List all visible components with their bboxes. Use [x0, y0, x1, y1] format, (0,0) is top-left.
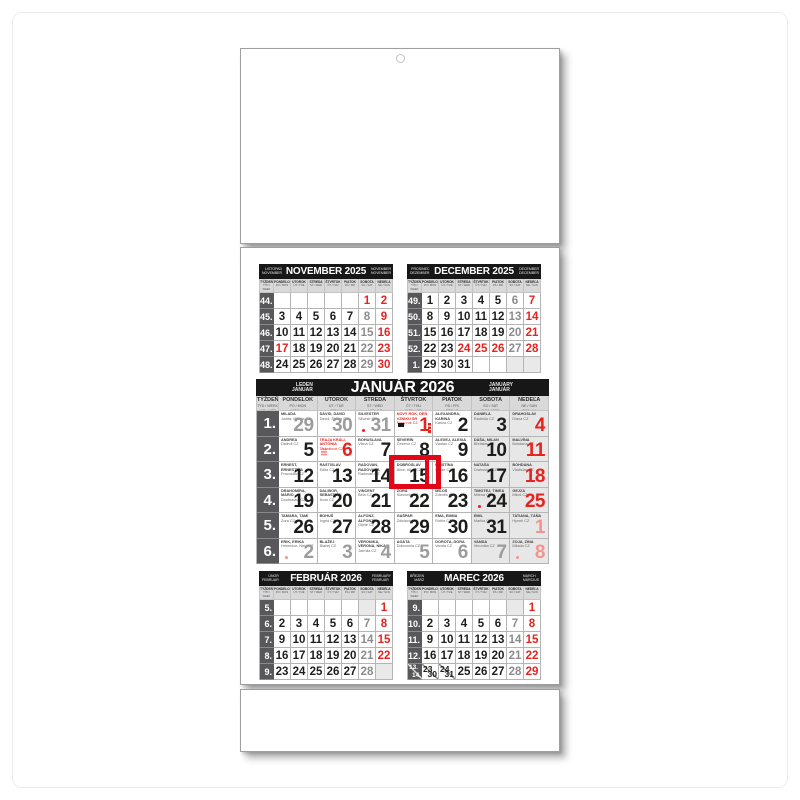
day-number: 5 [495, 295, 501, 307]
day-cell [308, 293, 325, 309]
week-number: 12. [408, 648, 422, 664]
week-number: 13.14. [408, 664, 422, 680]
day-number: 24 [276, 359, 289, 371]
weekday-cell: STREDAST / WED [308, 279, 325, 293]
weekday-cell: TÝŽDEŇTÝD / WEEK [408, 279, 422, 293]
day-cell: 28 [342, 357, 359, 373]
day-number: 8 [381, 618, 387, 630]
day-cell: NATAŠADrahoslav CZ17 [472, 462, 511, 488]
day-number: 6 [330, 311, 336, 323]
day-number: 4 [461, 618, 467, 630]
weekday-sub: ST / WED [456, 591, 472, 595]
day-cell: 18 [456, 648, 473, 664]
day-number: 31 [486, 518, 506, 537]
day-number: 3 [342, 543, 352, 562]
day-cell: 31 [456, 357, 473, 373]
day-number: 6 [495, 618, 501, 630]
week-number: 4. [257, 488, 279, 514]
day-number: 17 [293, 650, 306, 662]
day-number: 3 [461, 295, 467, 307]
footer-advert-area [240, 689, 560, 752]
day-cell: 22 [359, 341, 376, 357]
day-cell: VERONIKA, VERONA, NIKAJarmila CZ4 [356, 539, 395, 565]
day-cell: 4 [473, 293, 490, 309]
day-cell: ALFONZ, ALFONZIAOtýlie CZ28 [356, 513, 395, 539]
month-names-right: FEBRUARYFEBRUÁR [372, 574, 391, 582]
weekday-sub: TÝD / WEEK [408, 591, 421, 598]
day-cell: 2 [439, 293, 456, 309]
day-cell [490, 600, 507, 616]
day-number: 13 [332, 467, 352, 486]
weekday-sub: NE / SUN [524, 284, 540, 288]
weekday-name: PONDELOK [279, 396, 317, 404]
day-number: 5 [330, 618, 336, 630]
day-cell: BOHDANAVladislav CZ18 [510, 462, 549, 488]
day-cell: 20 [325, 341, 342, 357]
weekday-name: TÝŽDEŇ [257, 396, 278, 404]
day-number: 15 [378, 634, 391, 646]
day-cell: ZORASlavomír CZ22 [395, 488, 434, 514]
day-number: 11 [458, 634, 470, 646]
date-cursor-slider[interactable] [389, 455, 441, 489]
day-cell: 26 [308, 357, 325, 373]
mini-month-november: LISTOPADNOVEMBERNOVEMBER 2025NOVEMBERNOV… [259, 264, 393, 373]
weekday-cell: ŠTVRTOKČT / THU [473, 586, 490, 600]
day-number: 29 [424, 359, 437, 371]
day-number: 24 [458, 343, 471, 355]
day-number: 13 [492, 634, 505, 646]
day-cell: BOHUŠIngrid CZ27 [318, 513, 357, 539]
day-cell: 7 [507, 616, 524, 632]
nameday-sk: DRAHOSLAV [512, 412, 536, 416]
week-number: 5. [257, 513, 279, 539]
day-number: 1 [419, 416, 429, 435]
day-number: 31 [371, 416, 391, 435]
day-cell: 1 [359, 293, 376, 309]
week-number: 9. [408, 600, 422, 616]
day-cell: 2 [422, 616, 439, 632]
weekday-sub: ÚT / TUE [291, 284, 307, 288]
day-number: 12 [327, 634, 340, 646]
state-flag-icon [398, 423, 404, 427]
nameday-sk: GEJZA [512, 489, 525, 493]
weekday-header: TÝŽDEŇTÝD / WEEKPONDELOKPO / MONUTOROKÚT… [259, 279, 393, 293]
weekday-cell: PONDELOKPO / MON [422, 586, 439, 600]
day-cell: GEJZAMiloš CZ25 [510, 488, 549, 514]
day-number: 6 [342, 441, 352, 460]
day-cell: 5 [490, 293, 507, 309]
day-number: 1 [529, 602, 535, 614]
day-cell: 10 [274, 325, 291, 341]
month-grid: 49.123456750.89101112131451.151617181920… [407, 293, 541, 373]
hanging-hole [396, 54, 405, 63]
day-number: 26 [310, 359, 323, 371]
month-names-right: MARCHMÁRCIUS [523, 574, 539, 582]
day-number: 22 [409, 492, 429, 511]
day-cell: 1 [524, 600, 541, 616]
weekday-cell: SOBOTASO / SATSAM / SZO [472, 396, 511, 411]
day-cell: 17 [274, 341, 291, 357]
day-number: 21 [371, 492, 391, 511]
day-number: 19 [492, 327, 505, 339]
day-cell [274, 600, 291, 616]
day-number: 27 [492, 666, 505, 678]
day-cell: 2 [376, 293, 393, 309]
day-cell: 16 [376, 325, 393, 341]
day-cell: 25 [473, 341, 490, 357]
day-number: 14 [526, 311, 539, 323]
weekday-cell: TÝŽDEŇTÝD / WEEK [260, 586, 274, 600]
day-cell: 22 [524, 648, 541, 664]
day-number: 2 [381, 295, 387, 307]
day-cell: 5 [473, 616, 490, 632]
day-number: 21 [526, 327, 539, 339]
day-number: 11 [475, 311, 487, 323]
day-number: 22 [378, 650, 391, 662]
nameday-sk: ALEXANDRA, KARINA [435, 412, 460, 421]
day-cell [325, 293, 342, 309]
day-number: 29 [361, 359, 374, 371]
day-number: 25 [310, 666, 323, 678]
day-number: 30 [441, 359, 454, 371]
day-cell: 12 [490, 309, 507, 325]
day-cell: MILOŠZdeněk CZ23 [433, 488, 472, 514]
month-header-bar: PROSINECDEZEMBERDECEMBER 2025DECEMBERDEC… [407, 264, 541, 279]
day-cell: RASTISLAVEdita CZ13 [318, 462, 357, 488]
day-number: 6 [458, 543, 468, 562]
weekday-cell: STREDAST / WEDMIT / SZ [356, 396, 395, 411]
holiday-dots-icon [321, 448, 327, 456]
day-cell: 12 [308, 325, 325, 341]
weekday-cell: UTOROKÚT / TUE [291, 279, 308, 293]
day-number: 18 [475, 327, 488, 339]
nameday-sk: ANDREA [281, 438, 297, 442]
day-cell: MALVÍNABohdana CZ11 [510, 437, 549, 463]
day-cell: DANIELARadmila CZ3 [472, 411, 511, 437]
day-cell: 17 [456, 325, 473, 341]
day-cell [507, 357, 524, 373]
weekday-header: TÝŽDEŇTÝD / WEEKPONDELOKPO / MONUTOROKÚT… [407, 586, 541, 600]
day-number: 2 [279, 618, 285, 630]
weekday-sub: TÝD / WEEK [257, 404, 278, 408]
day-number: 18 [293, 343, 306, 355]
day-number: 1 [535, 518, 545, 537]
day-number: 9 [458, 441, 468, 460]
day-number: 9 [427, 634, 433, 646]
day-number: 13 [327, 327, 340, 339]
day-cell: 9 [376, 309, 393, 325]
day-cell: 16 [422, 648, 439, 664]
day-number: 11 [526, 441, 545, 460]
day-number: 26 [293, 518, 313, 537]
day-cell [308, 600, 325, 616]
day-number: 24 [486, 492, 506, 511]
day-cell: 26 [473, 664, 490, 680]
day-number: 10 [486, 441, 506, 460]
weekday-cell: NEDEĽANE / SUNSON / V [510, 396, 549, 411]
day-number: 25 [293, 359, 306, 371]
day-number: 12 [475, 634, 488, 646]
day-number: 27 [327, 359, 340, 371]
day-number: 5 [478, 618, 484, 630]
day-cell: 20 [342, 648, 359, 664]
weekday-sub: TÝD / WEEK [408, 284, 421, 291]
day-number: 12 [293, 467, 313, 486]
nameday-sk: DANIELA [474, 412, 491, 416]
day-number: 7 [364, 618, 370, 630]
day-cell: ZOJA, ZINAMilada CZ8 [510, 539, 549, 565]
day-cell: 7 [342, 309, 359, 325]
moon-phase-icon [285, 556, 288, 559]
day-cell: 16 [439, 325, 456, 341]
week-number: 51. [408, 325, 422, 341]
day-cell [342, 293, 359, 309]
day-cell: 13 [490, 632, 507, 648]
month-grid: 5.16.23456787.91011121314158.16171819202… [259, 600, 393, 680]
month-title: NOVEMBER 2025 [286, 266, 366, 277]
weekday-cell: PIATOKPÁ / FRIFRE / P [433, 396, 472, 411]
day-number: 2 [444, 295, 450, 307]
day-number: 4 [478, 295, 484, 307]
weekday-cell: STREDAST / WED [308, 586, 325, 600]
day-number: 7 [496, 543, 506, 562]
day-cell: VANDAVeronika CZ7 [472, 539, 511, 565]
nameday-sk: VANDA [474, 540, 487, 544]
weekday-cell: NEDEĽANE / SUN [524, 586, 541, 600]
day-cell: 27 [342, 664, 359, 680]
weekday-cell: NEDEĽANE / SUN [376, 279, 393, 293]
day-number: 27 [509, 343, 522, 355]
day-number: 14 [344, 327, 357, 339]
month-title: DECEMBER 2025 [434, 266, 514, 277]
day-cell: 14 [359, 632, 376, 648]
day-cell: DÁVID, DAVIDDavid, Šimon CZ30 [318, 411, 357, 437]
day-number: 23 [441, 343, 454, 355]
day-number: 20 [332, 492, 352, 511]
day-cell: 17 [439, 648, 456, 664]
day-number: 18 [525, 467, 545, 486]
day-number: 10 [293, 634, 306, 646]
week-number: 6. [260, 616, 274, 632]
day-cell: 3 [456, 293, 473, 309]
weekday-sub: PÁ / FRI [490, 284, 506, 288]
weekday-cell: UTOROKÚT / TUEDIE / K [318, 396, 357, 411]
week-number: 48. [260, 357, 274, 373]
day-number: 3 [296, 618, 302, 630]
day-cell: 28 [507, 664, 524, 680]
day-number: 28 [361, 666, 374, 678]
day-number: 11 [310, 634, 322, 646]
day-cell: 6 [342, 616, 359, 632]
week-number: 14. [412, 672, 421, 679]
weekday-sub: PO / MON [274, 284, 290, 288]
day-cell: 11 [473, 309, 490, 325]
weekday-cell: PIATOKPÁ / FRI [490, 586, 507, 600]
day-number: 8 [535, 543, 545, 562]
day-number: 7 [529, 295, 535, 307]
day-cell: 4 [456, 616, 473, 632]
day-cell [456, 600, 473, 616]
day-cell: 26 [490, 341, 507, 357]
day-number: 9 [444, 311, 450, 323]
day-number: 17 [276, 343, 289, 355]
day-number: 16 [424, 650, 437, 662]
weekday-sub: ÚT / TUE [291, 591, 307, 595]
weekday-cell: UTOROKÚT / TUE [439, 586, 456, 600]
day-number: 20 [509, 327, 522, 339]
day-cell [274, 293, 291, 309]
month-header-bar: BŘEZENMÄRZMAREC 2026MARCHMÁRCIUS [407, 571, 541, 586]
day-number: 3 [279, 311, 285, 323]
day-cell: 20 [490, 648, 507, 664]
day-cell: 9 [439, 309, 456, 325]
day-number: 6 [347, 618, 353, 630]
weekday-cell: SOBOTASO / SAT [359, 586, 376, 600]
day-cell: 14 [524, 309, 541, 325]
weekday-cell: NEDEĽANE / SUN [524, 279, 541, 293]
day-number: 28 [526, 343, 539, 355]
weekday-name: STREDA [356, 396, 394, 404]
day-cell: 18 [291, 341, 308, 357]
weekday-cell: ŠTVRTOKČT / THU [325, 586, 342, 600]
day-number: 2 [427, 618, 433, 630]
week-number: 1. [257, 411, 279, 437]
day-cell: TATIANA, TÁŇAHynek CZ1 [510, 513, 549, 539]
day-cell: ALEXANDRA, KARINAKarina CZ2 [433, 411, 472, 437]
week-number: 52. [408, 341, 422, 357]
nameday-sk: MILOŠ [435, 489, 447, 493]
day-number: 13 [509, 311, 522, 323]
day-cell: BLAŽEJBlažej CZ3 [318, 539, 357, 565]
day-cell: 19 [473, 648, 490, 664]
day-number: 4 [296, 311, 302, 323]
day-number: 22 [526, 650, 539, 662]
day-number: 16 [441, 327, 454, 339]
day-cell: 1 [422, 293, 439, 309]
day-number: 6 [512, 295, 518, 307]
day-number: 19 [475, 650, 488, 662]
day-cell: 12 [325, 632, 342, 648]
day-cell: EMA, EMMARobin CZ30 [433, 513, 472, 539]
day-cell: 30 [376, 357, 393, 373]
day-cell: 6 [507, 293, 524, 309]
day-cell: EMILMarika CZ31 [472, 513, 511, 539]
day-cell: 29 [524, 664, 541, 680]
weekday-name: NEDEĽA [510, 396, 548, 404]
day-cell: 24 [456, 341, 473, 357]
day-number: 7 [347, 311, 353, 323]
day-number: 29 [293, 416, 313, 435]
day-cell: 2330 [422, 664, 439, 680]
weekday-cell: ŠTVRTOKČT / THUDON / CS [395, 396, 434, 411]
day-number: 8 [427, 311, 433, 323]
day-number: 25 [525, 492, 545, 511]
day-cell: 5 [308, 309, 325, 325]
weekday-cell: TÝŽDEŇTÝD / WEEK [408, 586, 422, 600]
day-cell: NOVÝ ROK, DEŇ VZNIKU SRNový rok CZ1 [395, 411, 434, 437]
day-number: 5 [419, 543, 429, 562]
nameday-sk: ZOJA, ZINA [512, 540, 533, 544]
day-cell: 6 [490, 616, 507, 632]
day-cell: 11 [291, 325, 308, 341]
day-number: 23 [448, 492, 468, 511]
day-cell: 21 [524, 325, 541, 341]
day-cell: 24 [291, 664, 308, 680]
day-number: 10 [276, 327, 289, 339]
day-cell: 24 [274, 357, 291, 373]
weekday-cell: TÝŽDEŇTÝD / WEEKWO / HÉT [257, 396, 279, 411]
weekday-cell: PONDELOKPO / MONMON / H [279, 396, 318, 411]
day-cell: ERIK, ERIKAHromnice, Nela CZ2 [279, 539, 318, 565]
day-cell: DALIBOR, SEBASTIÁNIlona CZ20 [318, 488, 357, 514]
day-cell: 2 [274, 616, 291, 632]
day-cell: 8 [376, 616, 393, 632]
weekday-header: TÝŽDEŇTÝD / WEEKPONDELOKPO / MONUTOROKÚT… [259, 586, 393, 600]
weekday-name: PIATOK [433, 396, 471, 404]
day-number: 15 [424, 327, 437, 339]
weekday-cell: PIATOKPÁ / FRI [342, 586, 359, 600]
weekday-sub: ÚT / TUE [439, 591, 455, 595]
day-cell: TIMOTEJ, TIMEAMilena CZ24 [472, 488, 511, 514]
nameday-sk: BLAŽEJ [320, 540, 335, 544]
day-number: 26 [327, 666, 340, 678]
week-number: 44. [260, 293, 274, 309]
day-cell: 30 [439, 357, 456, 373]
moon-phase-icon [362, 429, 365, 432]
day-number: 15 [361, 327, 374, 339]
day-number: 16 [276, 650, 289, 662]
day-number: 2 [303, 543, 313, 562]
day-number: 12 [310, 327, 323, 339]
month-names-left: ÚNORFEBRUAR [262, 574, 279, 582]
day-cell: 18 [473, 325, 490, 341]
day-cell [524, 357, 541, 373]
month-name-de: FEBRUAR [262, 578, 279, 582]
day-cell: DÁŠA, MILANBřetislav CZ10 [472, 437, 511, 463]
day-cell: 23 [439, 341, 456, 357]
day-number: 28 [371, 518, 391, 537]
month-title: FEBRUÁR 2026 [290, 573, 362, 584]
weekday-sub: NE / SUN [376, 591, 392, 595]
day-number: 17 [458, 327, 471, 339]
day-cell: 20 [507, 325, 524, 341]
day-cell [325, 600, 342, 616]
day-cell: 26 [325, 664, 342, 680]
week-number: 8. [260, 648, 274, 664]
day-cell: 22 [376, 648, 393, 664]
day-number: 27 [332, 518, 352, 537]
day-number: 19 [327, 650, 340, 662]
day-number: 22 [424, 343, 437, 355]
day-number: 16 [378, 327, 391, 339]
day-cell: 13 [325, 325, 342, 341]
day-cell: 3 [439, 616, 456, 632]
day-cell: AGÁTADobromila CZ5 [395, 539, 434, 565]
month-name-hu: FEBRUÁR [372, 578, 391, 582]
month-grid: 9.110.234567811.910111213141512.16171819… [407, 600, 541, 680]
day-cell: 4 [291, 309, 308, 325]
day-cell: 2431 [439, 664, 456, 680]
week-number: 11. [408, 632, 422, 648]
week-number: 50. [408, 309, 422, 325]
day-cell: SILVESTERSilvestr CZ31 [356, 411, 395, 437]
weekday-cell: STREDAST / WED [456, 279, 473, 293]
day-number: 2 [458, 416, 468, 435]
day-number: 7 [512, 618, 518, 630]
day-cell: VINCENTBěla CZ21 [356, 488, 395, 514]
weekday-sub: SO / SAT [507, 284, 523, 288]
day-number: 9 [381, 311, 387, 323]
